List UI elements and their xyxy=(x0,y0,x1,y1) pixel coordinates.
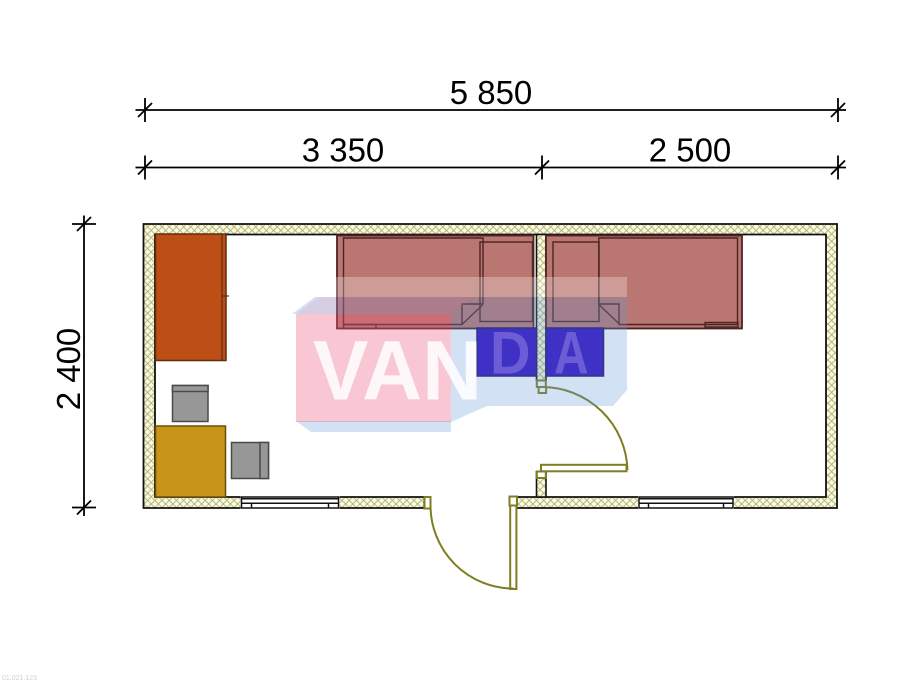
svg-text:3 350: 3 350 xyxy=(302,132,385,169)
svg-text:2 500: 2 500 xyxy=(649,132,732,169)
svg-text:5 850: 5 850 xyxy=(450,74,533,111)
svg-text:D: D xyxy=(490,320,531,387)
svg-text:2 400: 2 400 xyxy=(50,328,87,411)
svg-text:01.021.123: 01.021.123 xyxy=(2,675,37,682)
svg-text:VAN: VAN xyxy=(313,324,482,418)
svg-text:A: A xyxy=(554,320,589,387)
